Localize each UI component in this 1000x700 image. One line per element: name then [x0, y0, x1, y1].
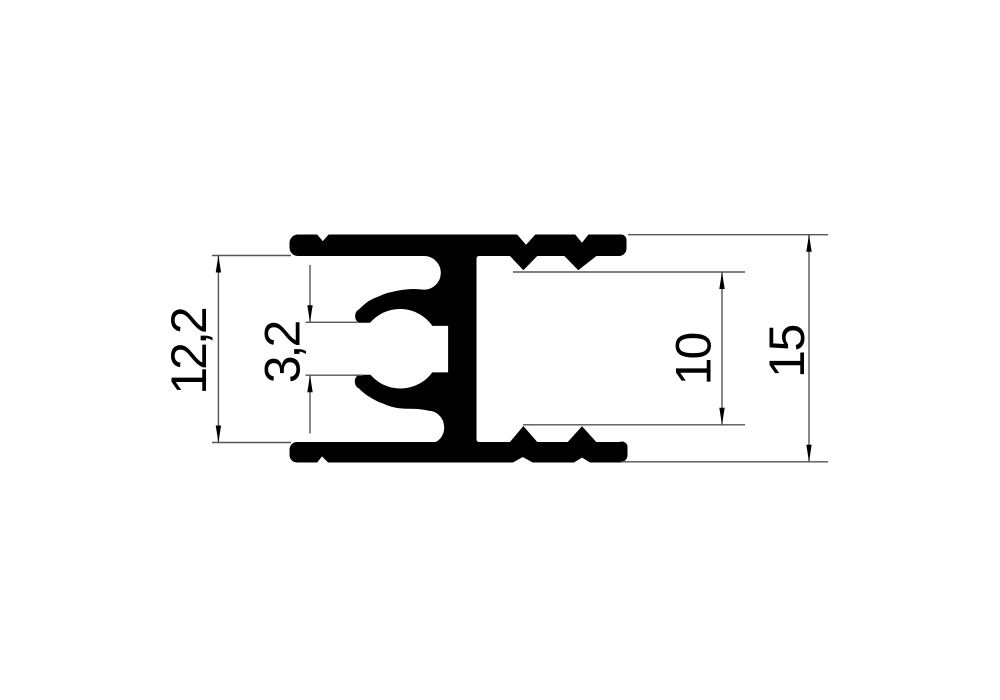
svg-text:10: 10 [666, 334, 722, 386]
svg-text:15: 15 [759, 325, 815, 378]
svg-text:12,2: 12,2 [161, 308, 217, 395]
svg-text:3,2: 3,2 [255, 322, 311, 384]
